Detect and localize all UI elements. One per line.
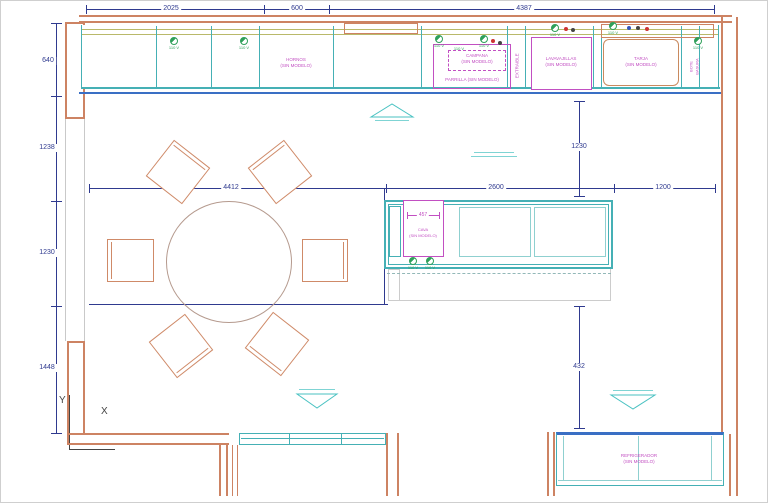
outlet-icon: [409, 257, 417, 265]
tarja-label: TARJA (SIN MODELO): [625, 56, 656, 67]
outlet-voltage-label: 110 V: [543, 32, 567, 37]
counter-front-line: [81, 87, 720, 89]
outlet-110v: 110 V: [232, 37, 256, 50]
dim-tick: [51, 201, 62, 202]
lavavajillas-label: LAVAVAJILLAS (SIN MODELO): [545, 56, 576, 67]
dim-tick: [51, 306, 62, 307]
dim-top-left: 2025: [161, 5, 181, 13]
dim-top-right: 4387: [514, 5, 534, 13]
wall-opening-line: [84, 119, 85, 341]
hornos-label-line2: (SIN MODELO): [280, 63, 311, 69]
chair: [149, 314, 214, 379]
cabinet-divider: [259, 26, 260, 87]
axis-x-label: X: [101, 407, 108, 417]
outlet-voltage-label: 110 V: [686, 45, 710, 50]
cabinet-divider: [211, 26, 212, 87]
hornos-label: HORNOS (SIN MODELO): [280, 57, 311, 68]
outlet-icon: [435, 35, 443, 43]
chair-back-line: [111, 242, 112, 279]
wall-bottom-left: [67, 433, 229, 445]
level-marker-down-icon: [609, 393, 657, 411]
island-dashed-edge: [387, 273, 611, 274]
island-cabinet: [459, 207, 531, 257]
chair-back-line: [250, 346, 282, 371]
dim-tick: [574, 101, 585, 102]
marker-caption-line: [299, 389, 335, 390]
outlet-110v: 110 V: [418, 257, 442, 270]
marker-caption-line: [613, 390, 653, 391]
dim-tick: [714, 5, 715, 14]
symbol-dot-dark: [498, 41, 502, 45]
chair: [146, 140, 211, 205]
chair-back-line: [173, 145, 205, 170]
outlet-icon: [551, 24, 559, 32]
marker-caption-line: [474, 152, 514, 153]
outlet-icon: [609, 22, 617, 30]
wall-right: [721, 17, 738, 434]
cabinet-divider: [156, 26, 157, 87]
campana-label: CAMPANA (SIN MODELO): [461, 53, 492, 64]
symbol-dot-blue: [627, 26, 631, 30]
marker-caption-line: [471, 156, 517, 157]
symbol-dot-red: [491, 39, 495, 43]
wall-bottom-mid-stub: [386, 433, 399, 496]
dim-left-2: 1238: [37, 144, 57, 152]
outlet-110v: 110 V: [543, 24, 567, 37]
outlet-voltage-label: 110 V: [427, 43, 451, 48]
dim-mid-1: 4412: [221, 184, 241, 192]
dim-tick: [51, 433, 62, 434]
wall-bottom-right: [729, 434, 738, 496]
refrigerador-label-line2: (SIN MODELO): [621, 459, 657, 465]
wall-top: [79, 15, 732, 23]
island-cabinet: [534, 207, 606, 257]
dim-top-mid: 600: [289, 5, 305, 13]
upper-cabinet-box: [344, 23, 418, 34]
cabinet-divider: [525, 26, 526, 87]
outlet-icon: [240, 37, 248, 45]
window-mid-line: [241, 438, 384, 439]
dim-tick: [51, 96, 62, 97]
tarja-label-line2: (SIN MODELO): [625, 62, 656, 68]
wall-opening-line: [65, 119, 66, 341]
outlet-icon: [694, 37, 702, 45]
cad-drawing-canvas[interactable]: 2025 600 4387 640 1238 1230 1448 4412 26…: [0, 0, 768, 503]
outlet-voltage-label: 110 V: [601, 30, 625, 35]
outlet-icon: [480, 35, 488, 43]
chair-back-line: [176, 348, 208, 373]
lavavajillas-label-line2: (SIN MODELO): [545, 62, 576, 68]
dim-tick: [574, 196, 585, 197]
chair: [248, 140, 313, 205]
outlet-110v: 110 V: [601, 22, 625, 35]
outlet-voltage-label: 110 V: [232, 45, 256, 50]
campana-label-line1: CAMPANA: [461, 53, 492, 59]
marker-caption-line: [375, 120, 409, 121]
outlet-icon: [170, 37, 178, 45]
dim-tick: [86, 5, 87, 14]
outlet-110v: 110 V: [686, 37, 710, 50]
dim-tick: [574, 306, 585, 307]
outlet-110v: 110 V: [427, 35, 451, 48]
dim-right-lower: 432: [571, 363, 587, 371]
window-divider: [341, 434, 342, 444]
dim-tick: [407, 212, 408, 219]
campana-label-line2: (SIN MODELO): [461, 59, 492, 65]
chair-back-line: [343, 242, 344, 279]
cava-label: CAVA (SIN MODELO): [409, 227, 437, 238]
dim-left-3: 1230: [37, 249, 57, 257]
outlet-icon: [426, 257, 434, 265]
dim-tick: [329, 5, 330, 14]
wall-bottom-stub-2: [232, 445, 238, 496]
chair: [245, 312, 310, 377]
outlet-voltage-label: 110 V: [451, 46, 467, 51]
wall-fridge-left: [547, 432, 555, 496]
wall-bottom-stub-1: [219, 445, 228, 496]
cabinet-divider: [333, 26, 334, 87]
symbol-dot-dark: [571, 28, 575, 32]
counter-blue-line: [79, 92, 721, 94]
dim-tick: [51, 23, 62, 24]
fridge-divider: [563, 436, 564, 481]
parrilla-label: PARRILLA (SIN MODELO): [445, 77, 499, 83]
level-marker-down-icon: [295, 392, 339, 410]
symbol-dot-red: [564, 27, 568, 31]
chair: [302, 239, 348, 282]
dim-tick: [439, 212, 440, 219]
cabinet-divider: [593, 26, 594, 87]
island-end-panel: [389, 206, 401, 257]
outlet-voltage-label: 110 V: [162, 45, 186, 50]
axis-y-label: Y: [59, 396, 66, 406]
level-marker-up-icon: [369, 102, 415, 120]
refrigerador-label: REFRIGERADOR (SIN MODELO): [621, 453, 657, 464]
extraible-label: EXTRAIBLE: [514, 44, 520, 88]
window-bottom: [239, 433, 386, 445]
bote-basura-label: BOTE BASURA: [689, 58, 700, 74]
axis-x-line: [69, 449, 115, 450]
symbol-dot-red: [645, 27, 649, 31]
refrigerador-label-line1: REFRIGERADOR: [621, 453, 657, 459]
chair: [107, 239, 154, 282]
dim-left-1: 640: [40, 57, 56, 65]
dim-mid-3: 1200: [653, 184, 673, 192]
symbol-dot-dark: [636, 26, 640, 30]
dim-mid-2: 2600: [486, 184, 506, 192]
outlet-110v: 110 V: [162, 37, 186, 50]
outlet-voltage-label: 110 V: [472, 43, 496, 48]
dim-right-upper: 1230: [569, 143, 589, 151]
bote-label-line2: BASURA: [694, 58, 700, 74]
outlet-voltage-label: 110 V: [418, 265, 442, 270]
cabinet-divider: [421, 26, 422, 87]
dining-table-round: [166, 201, 292, 323]
dim-island-width: 457: [417, 212, 429, 218]
chair-back-line: [253, 145, 285, 170]
wall-left-lower-column: [67, 341, 85, 435]
dim-left-4: 1448: [37, 364, 57, 372]
dim-tick: [574, 428, 585, 429]
cava-label-line2: (SIN MODELO): [409, 233, 437, 239]
fridge-inner-line: [558, 480, 722, 481]
dim-tick: [264, 5, 265, 14]
lavavajillas-label-line1: LAVAVAJILLAS: [545, 56, 576, 62]
fridge-divider: [711, 436, 712, 481]
window-divider: [289, 434, 290, 444]
